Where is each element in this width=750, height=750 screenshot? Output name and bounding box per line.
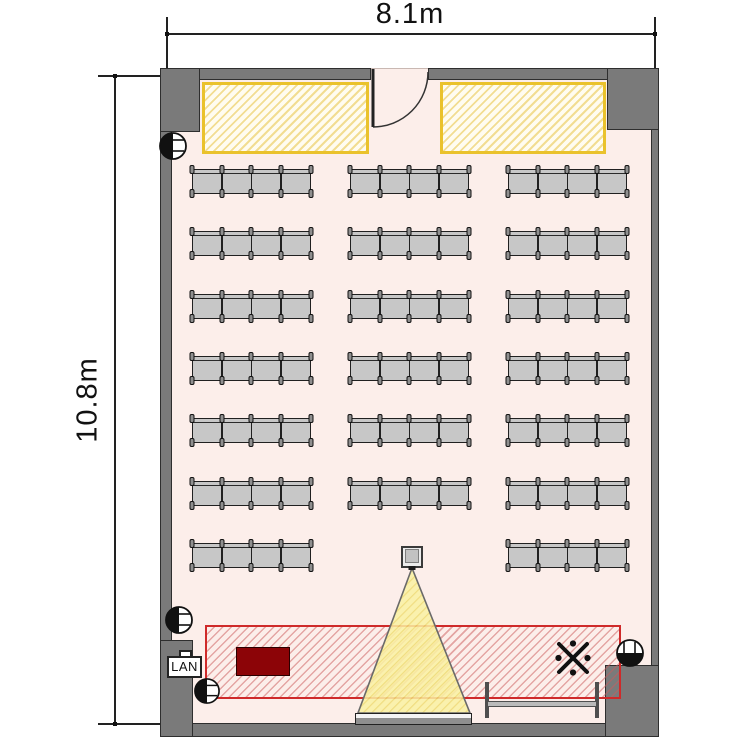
chair-stud <box>220 290 225 299</box>
chair <box>380 356 410 381</box>
chair <box>222 169 252 194</box>
chair-stud <box>506 290 511 299</box>
chair-stud <box>506 438 511 447</box>
chair-stud <box>437 227 442 236</box>
chair <box>409 418 439 443</box>
chair-stud <box>625 376 630 385</box>
dimension-extension-top-right <box>654 17 656 70</box>
chair-stud <box>437 251 442 260</box>
width-dimension-label: 8.1m <box>330 0 490 31</box>
chair <box>281 481 311 506</box>
chair <box>409 231 439 256</box>
chair <box>508 294 538 319</box>
chair-stud <box>407 501 412 510</box>
chair-stud <box>279 414 284 423</box>
chair-stud <box>625 414 630 423</box>
chair-stud <box>467 501 472 510</box>
chair-stud <box>279 352 284 361</box>
chair <box>380 231 410 256</box>
chair-stud <box>279 563 284 572</box>
chair-stud <box>595 376 600 385</box>
chair-stud <box>279 165 284 174</box>
chair-stud <box>625 165 630 174</box>
chair <box>439 231 469 256</box>
chair-stud <box>249 501 254 510</box>
chair-stud <box>437 438 442 447</box>
chair-stud <box>348 477 353 486</box>
chair-stud <box>536 165 541 174</box>
chair-stud <box>378 414 383 423</box>
chair-stud <box>595 438 600 447</box>
chair-group-center <box>350 231 469 256</box>
chair-stud <box>565 227 570 236</box>
chair-stud <box>437 165 442 174</box>
chair <box>538 294 568 319</box>
chair-stud <box>190 165 195 174</box>
chair-stud <box>309 539 314 548</box>
chair-stud <box>565 290 570 299</box>
chair-stud <box>565 438 570 447</box>
dimension-tick <box>113 74 117 78</box>
chair <box>222 231 252 256</box>
projector-icon <box>401 546 423 568</box>
chair-stud <box>506 539 511 548</box>
chair-stud <box>279 376 284 385</box>
chair-group-left <box>192 356 311 381</box>
chair-stud <box>378 314 383 323</box>
chair-stud <box>625 189 630 198</box>
chair-stud <box>437 189 442 198</box>
chair-stud <box>506 165 511 174</box>
chair-stud <box>190 251 195 260</box>
chair-stud <box>565 501 570 510</box>
chair-stud <box>309 165 314 174</box>
table-area-left <box>202 82 369 154</box>
chair-stud <box>190 227 195 236</box>
chair-stud <box>625 251 630 260</box>
chair-stud <box>467 477 472 486</box>
chair <box>439 418 469 443</box>
chair-stud <box>220 477 225 486</box>
chair-stud <box>625 227 630 236</box>
chair-stud <box>506 563 511 572</box>
chair-stud <box>348 251 353 260</box>
dimension-tick <box>165 32 169 36</box>
chair <box>409 294 439 319</box>
chair <box>251 418 281 443</box>
chair-stud <box>565 539 570 548</box>
chair-stud <box>407 314 412 323</box>
chair-stud <box>536 376 541 385</box>
chair <box>192 231 222 256</box>
chair-stud <box>279 501 284 510</box>
chair-stud <box>378 251 383 260</box>
height-dimension-label: 10.8m <box>72 357 105 443</box>
chair <box>597 481 627 506</box>
chair-stud <box>565 477 570 486</box>
chair-stud <box>378 477 383 486</box>
chair-stud <box>595 314 600 323</box>
chair-stud <box>625 563 630 572</box>
chair-group-center <box>350 356 469 381</box>
chair <box>567 481 597 506</box>
chair-group-left <box>192 418 311 443</box>
chair-stud <box>467 414 472 423</box>
chair-stud <box>536 227 541 236</box>
screen-post <box>485 682 489 718</box>
chair-stud <box>249 352 254 361</box>
chair-group-center <box>350 169 469 194</box>
chair-stud <box>536 438 541 447</box>
chair-stud <box>249 314 254 323</box>
reference-mark-icon <box>553 638 593 678</box>
chair-stud <box>506 314 511 323</box>
chair-stud <box>565 376 570 385</box>
chair-stud <box>407 251 412 260</box>
chair-group-left <box>192 294 311 319</box>
chair <box>439 356 469 381</box>
chair-stud <box>595 352 600 361</box>
chair <box>538 231 568 256</box>
chair-stud <box>467 352 472 361</box>
chair <box>222 356 252 381</box>
chair-stud <box>506 501 511 510</box>
chair-stud <box>437 477 442 486</box>
chair-group-left <box>192 231 311 256</box>
chair <box>222 294 252 319</box>
chair-group-right <box>508 481 627 506</box>
chair-stud <box>565 189 570 198</box>
chair-group-right <box>508 543 627 568</box>
chair-stud <box>309 352 314 361</box>
chair-stud <box>249 165 254 174</box>
projection-screen <box>355 713 472 725</box>
chair-stud <box>565 165 570 174</box>
chair-stud <box>595 414 600 423</box>
chair-group-right <box>508 294 627 319</box>
chair-stud <box>407 352 412 361</box>
column-top-right <box>607 68 659 130</box>
chair-stud <box>467 251 472 260</box>
chair-stud <box>506 189 511 198</box>
chair-stud <box>309 376 314 385</box>
chair <box>538 356 568 381</box>
chair-stud <box>309 189 314 198</box>
chair <box>251 294 281 319</box>
chair <box>439 169 469 194</box>
chair-stud <box>348 290 353 299</box>
chair-stud <box>378 438 383 447</box>
chair <box>597 231 627 256</box>
chair-stud <box>220 563 225 572</box>
chair <box>380 294 410 319</box>
dimension-line-left <box>114 76 116 725</box>
chair-stud <box>249 477 254 486</box>
floor-plan: 8.1m 10.8m <box>0 0 750 750</box>
chair-stud <box>467 290 472 299</box>
outlet-icon <box>159 132 187 160</box>
chair <box>508 543 538 568</box>
chair-stud <box>249 563 254 572</box>
screen-post <box>595 682 599 718</box>
chair-stud <box>220 539 225 548</box>
wall-bottom <box>160 723 659 737</box>
chair-stud <box>249 290 254 299</box>
chair-stud <box>536 539 541 548</box>
table-area-right <box>440 82 606 154</box>
chair-stud <box>220 501 225 510</box>
room: LAN <box>160 68 659 737</box>
chair-stud <box>536 189 541 198</box>
chair-stud <box>625 352 630 361</box>
chair <box>567 356 597 381</box>
chair <box>508 169 538 194</box>
whiteboard-rail <box>487 701 597 707</box>
chair-group-center <box>350 418 469 443</box>
chair <box>350 418 380 443</box>
chair-stud <box>279 290 284 299</box>
chair-stud <box>249 376 254 385</box>
chair-stud <box>378 501 383 510</box>
chair <box>251 356 281 381</box>
chair-stud <box>309 290 314 299</box>
chair-stud <box>348 189 353 198</box>
chair-stud <box>536 563 541 572</box>
chair-group-left <box>192 481 311 506</box>
wall-left <box>160 68 172 737</box>
chair <box>192 356 222 381</box>
chair-stud <box>565 352 570 361</box>
chair <box>597 294 627 319</box>
chair <box>380 481 410 506</box>
chair <box>409 481 439 506</box>
chair-stud <box>437 376 442 385</box>
chair-stud <box>536 290 541 299</box>
chair <box>597 169 627 194</box>
chair-stud <box>190 438 195 447</box>
chair <box>597 418 627 443</box>
podium-desk <box>236 647 290 676</box>
chair <box>251 543 281 568</box>
chair <box>538 169 568 194</box>
chair-stud <box>625 539 630 548</box>
chair-stud <box>565 314 570 323</box>
chair-stud <box>249 414 254 423</box>
chair-group-center <box>350 481 469 506</box>
chair <box>508 356 538 381</box>
dimension-extension-left-bottom <box>98 723 162 725</box>
chair-stud <box>309 563 314 572</box>
chair <box>409 356 439 381</box>
chair-stud <box>625 438 630 447</box>
chair-stud <box>467 227 472 236</box>
chair-stud <box>249 251 254 260</box>
chair-stud <box>190 290 195 299</box>
chair-stud <box>190 189 195 198</box>
chair-stud <box>220 165 225 174</box>
chair-stud <box>348 414 353 423</box>
chair-stud <box>220 438 225 447</box>
chair-stud <box>595 251 600 260</box>
chair <box>380 169 410 194</box>
chair-stud <box>249 539 254 548</box>
chair <box>222 418 252 443</box>
chair-stud <box>220 314 225 323</box>
chair-stud <box>279 438 284 447</box>
chair-stud <box>348 314 353 323</box>
chair-stud <box>467 438 472 447</box>
chair-stud <box>309 314 314 323</box>
chair-stud <box>595 189 600 198</box>
chair-stud <box>407 414 412 423</box>
chair-group-center <box>350 294 469 319</box>
outlet-icon <box>165 606 193 634</box>
chair-stud <box>565 414 570 423</box>
chair-stud <box>279 251 284 260</box>
chair-stud <box>220 376 225 385</box>
chair-group-right <box>508 356 627 381</box>
chair-stud <box>437 290 442 299</box>
chair-stud <box>625 290 630 299</box>
projector-lens <box>409 566 416 570</box>
chair-stud <box>348 376 353 385</box>
dimension-line-top <box>166 33 656 35</box>
chair <box>222 481 252 506</box>
chair-stud <box>467 376 472 385</box>
chair-stud <box>309 438 314 447</box>
chair-stud <box>467 314 472 323</box>
chair-stud <box>625 477 630 486</box>
chair-stud <box>595 477 600 486</box>
chair <box>508 418 538 443</box>
chair-group-left <box>192 543 311 568</box>
chair-stud <box>595 539 600 548</box>
chair-stud <box>595 165 600 174</box>
chair <box>350 356 380 381</box>
chair-stud <box>506 352 511 361</box>
chair-stud <box>190 477 195 486</box>
chair <box>439 294 469 319</box>
dimension-tick <box>653 32 657 36</box>
chair-stud <box>407 290 412 299</box>
chair-stud <box>249 189 254 198</box>
outlet-icon <box>616 639 644 667</box>
chair-stud <box>595 290 600 299</box>
chair <box>192 169 222 194</box>
chair-stud <box>348 165 353 174</box>
chair <box>567 543 597 568</box>
chair-stud <box>309 501 314 510</box>
chair-stud <box>220 414 225 423</box>
chair-stud <box>348 352 353 361</box>
projector-beam <box>350 564 480 716</box>
chair <box>508 481 538 506</box>
chair <box>538 481 568 506</box>
chair-stud <box>407 165 412 174</box>
chair <box>508 231 538 256</box>
chair-stud <box>249 438 254 447</box>
chair <box>281 356 311 381</box>
chair <box>567 231 597 256</box>
chair <box>567 294 597 319</box>
chair-stud <box>279 189 284 198</box>
chair-stud <box>407 376 412 385</box>
chair-stud <box>467 165 472 174</box>
chair <box>281 231 311 256</box>
chair <box>538 418 568 443</box>
chair-stud <box>190 539 195 548</box>
chair-stud <box>190 352 195 361</box>
outlet-icon <box>194 678 220 704</box>
chair <box>281 418 311 443</box>
chair-stud <box>506 251 511 260</box>
chair-stud <box>595 227 600 236</box>
chair-stud <box>595 563 600 572</box>
projector-body <box>405 549 419 563</box>
chair-stud <box>378 189 383 198</box>
chair-stud <box>190 376 195 385</box>
chair <box>251 481 281 506</box>
chair <box>597 356 627 381</box>
chair-stud <box>309 251 314 260</box>
chair-stud <box>378 290 383 299</box>
chair-stud <box>279 539 284 548</box>
chair <box>567 169 597 194</box>
chair-stud <box>220 352 225 361</box>
chair <box>192 543 222 568</box>
chair-stud <box>348 438 353 447</box>
chair-stud <box>348 227 353 236</box>
chair-group-left <box>192 169 311 194</box>
chair <box>567 418 597 443</box>
chair-stud <box>506 477 511 486</box>
chair-stud <box>506 414 511 423</box>
chair-stud <box>407 189 412 198</box>
chair-stud <box>625 314 630 323</box>
chair-stud <box>437 314 442 323</box>
chair-stud <box>536 477 541 486</box>
chair-stud <box>407 477 412 486</box>
chair-stud <box>220 189 225 198</box>
chair-stud <box>309 414 314 423</box>
chair-stud <box>190 314 195 323</box>
chair-stud <box>309 477 314 486</box>
chair-stud <box>595 501 600 510</box>
wall-right <box>651 68 659 737</box>
door-icon <box>365 67 435 133</box>
chair-group-right <box>508 418 627 443</box>
chair-stud <box>279 314 284 323</box>
chair-group-right <box>508 169 627 194</box>
column-top-left <box>160 68 200 132</box>
lan-port-label: LAN <box>167 656 202 678</box>
chair-stud <box>378 227 383 236</box>
dimension-tick <box>113 722 117 726</box>
chair <box>409 169 439 194</box>
chair <box>350 231 380 256</box>
chair-stud <box>506 376 511 385</box>
chair-stud <box>190 501 195 510</box>
chair-stud <box>536 501 541 510</box>
chair-stud <box>506 227 511 236</box>
chair-stud <box>348 501 353 510</box>
chair-stud <box>536 352 541 361</box>
chair-stud <box>565 251 570 260</box>
chair <box>597 543 627 568</box>
chair <box>350 169 380 194</box>
chair-group-right <box>508 231 627 256</box>
chair-stud <box>437 414 442 423</box>
